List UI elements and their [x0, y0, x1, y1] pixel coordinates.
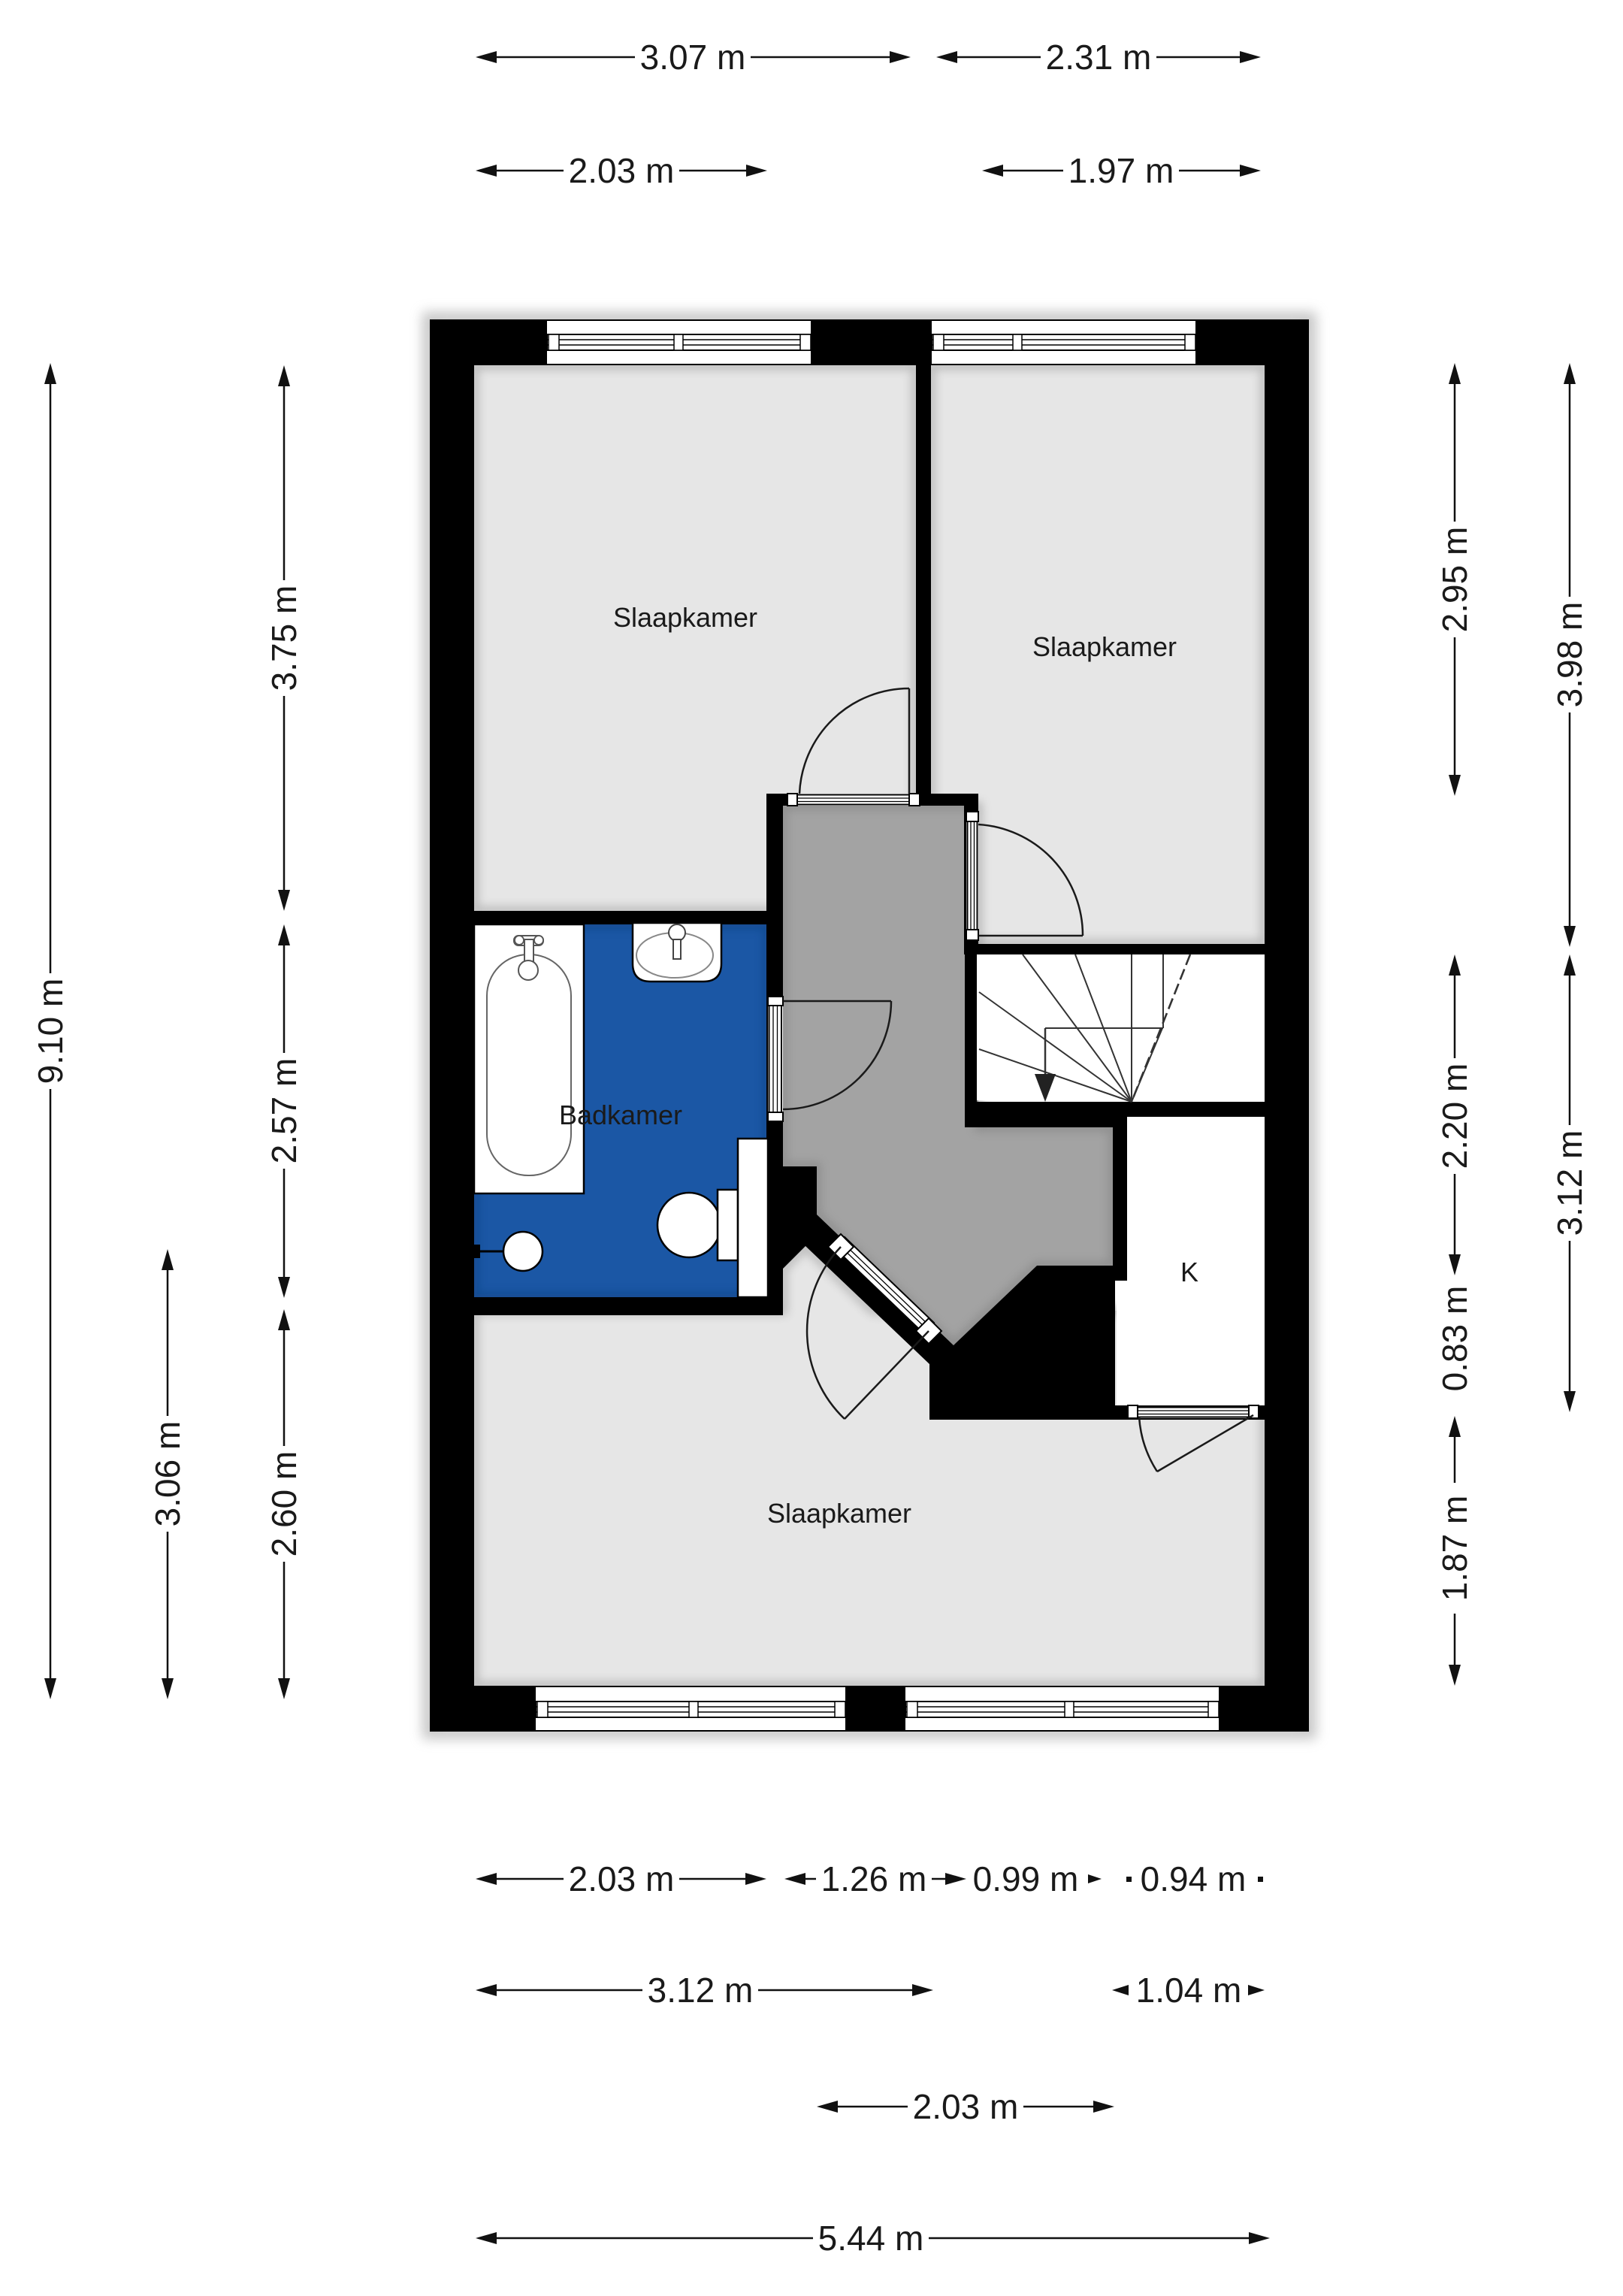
svg-text:0.99 m: 0.99 m: [973, 1859, 1079, 1898]
svg-text:3.12 m: 3.12 m: [648, 1971, 754, 2010]
svg-text:K: K: [1180, 1257, 1198, 1287]
svg-text:Slaapkamer: Slaapkamer: [767, 1498, 911, 1529]
svg-text:1.97 m: 1.97 m: [1068, 151, 1174, 190]
svg-text:2.60 m: 2.60 m: [264, 1451, 304, 1557]
svg-text:9.10 m: 9.10 m: [31, 979, 70, 1084]
svg-text:3.98 m: 3.98 m: [1550, 602, 1589, 708]
svg-text:2.03 m: 2.03 m: [913, 2087, 1019, 2126]
svg-text:3.12 m: 3.12 m: [1550, 1130, 1589, 1236]
svg-text:2.20 m: 2.20 m: [1435, 1063, 1474, 1169]
svg-text:1.87 m: 1.87 m: [1435, 1496, 1474, 1602]
svg-text:0.94 m: 0.94 m: [1141, 1859, 1247, 1898]
svg-text:Slaapkamer: Slaapkamer: [1032, 631, 1177, 662]
svg-text:2.03 m: 2.03 m: [569, 151, 675, 190]
svg-text:0.83 m: 0.83 m: [1435, 1286, 1474, 1392]
svg-text:3.07 m: 3.07 m: [640, 38, 746, 77]
svg-text:1.26 m: 1.26 m: [821, 1859, 927, 1898]
svg-text:3.75 m: 3.75 m: [264, 585, 304, 691]
svg-text:Badkamer: Badkamer: [559, 1100, 682, 1130]
svg-text:2.57 m: 2.57 m: [264, 1058, 304, 1164]
svg-text:5.44 m: 5.44 m: [818, 2219, 924, 2258]
svg-text:2.95 m: 2.95 m: [1435, 527, 1474, 633]
svg-text:3.06 m: 3.06 m: [148, 1421, 187, 1527]
svg-text:2.31 m: 2.31 m: [1046, 38, 1152, 77]
svg-text:1.04 m: 1.04 m: [1136, 1971, 1242, 2010]
svg-text:Slaapkamer: Slaapkamer: [613, 602, 757, 633]
svg-text:2.03 m: 2.03 m: [569, 1859, 675, 1898]
